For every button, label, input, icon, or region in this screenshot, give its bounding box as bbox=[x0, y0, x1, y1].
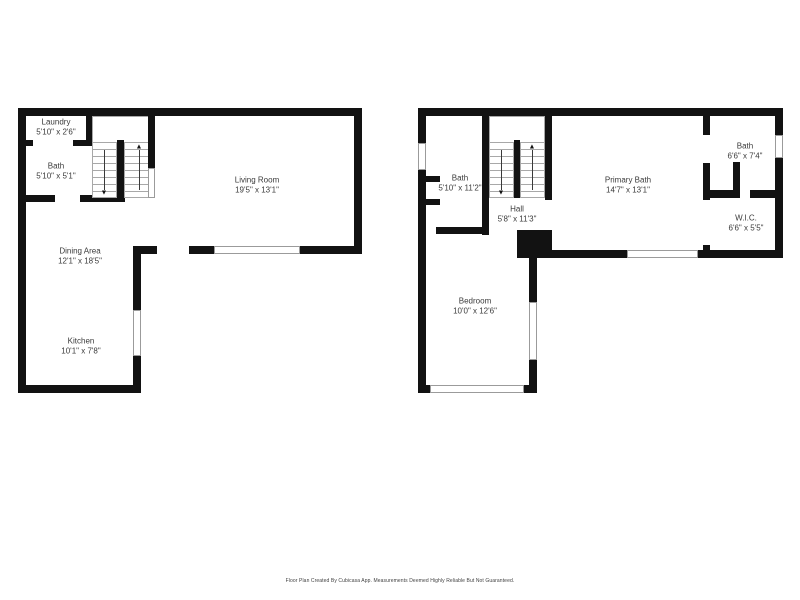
window bbox=[418, 143, 426, 170]
wall bbox=[529, 258, 537, 302]
room-dims: 10'0" x 12'6" bbox=[453, 307, 497, 317]
wall bbox=[482, 116, 489, 235]
stairs-down-arrow-icon: ▼ bbox=[498, 190, 505, 197]
wall bbox=[750, 190, 783, 198]
wall bbox=[517, 230, 552, 258]
floorplan-canvas: ▲ ▼ Laundry 5'10" x 2'6" Bath 5'10" x 5'… bbox=[0, 0, 800, 600]
wall bbox=[703, 116, 710, 135]
wall bbox=[418, 385, 430, 393]
wall bbox=[418, 170, 426, 393]
wall bbox=[418, 108, 783, 116]
room-label-wic: W.I.C. 6'6" x 5'5" bbox=[729, 214, 764, 235]
room-dims: 14'7" x 13'1" bbox=[605, 186, 651, 196]
room-name: Bath bbox=[438, 174, 481, 184]
room-label-hall: Hall 5'8" x 11'3" bbox=[498, 205, 537, 226]
wall bbox=[426, 199, 440, 205]
room-label-primary-bath: Primary Bath 14'7" x 13'1" bbox=[605, 176, 651, 197]
room-label-bath-upper: Bath 5'10" x 11'2" bbox=[438, 174, 481, 195]
stair-direction-line bbox=[501, 150, 502, 190]
stair-direction-line bbox=[532, 150, 533, 190]
room-name: Primary Bath bbox=[605, 176, 651, 186]
disclaimer-text: Floor Plan Created By Cubicasa App. Meas… bbox=[0, 578, 800, 584]
wall bbox=[775, 108, 783, 135]
wall bbox=[524, 385, 537, 393]
wall bbox=[514, 140, 520, 198]
wall bbox=[418, 108, 426, 143]
room-label-bedroom: Bedroom 10'0" x 12'6" bbox=[453, 297, 497, 318]
wall bbox=[775, 158, 783, 258]
room-name: Bedroom bbox=[453, 297, 497, 307]
room-dims: 6'6" x 7'4" bbox=[728, 152, 763, 162]
room-name: Hall bbox=[498, 205, 537, 215]
room-dims: 6'6" x 5'5" bbox=[729, 224, 764, 234]
room-name: W.I.C. bbox=[729, 214, 764, 224]
room-label-bath-corner: Bath 6'6" x 7'4" bbox=[728, 142, 763, 163]
window bbox=[529, 302, 537, 360]
window bbox=[627, 250, 698, 258]
wall bbox=[436, 227, 488, 234]
room-name: Bath bbox=[728, 142, 763, 152]
room-dims: 5'10" x 11'2" bbox=[438, 184, 481, 194]
wall bbox=[552, 250, 627, 258]
stairs-up-arrow-icon: ▲ bbox=[529, 144, 536, 151]
window bbox=[775, 135, 783, 158]
wall bbox=[698, 250, 783, 258]
wall bbox=[703, 245, 710, 258]
wall bbox=[545, 116, 552, 200]
wall bbox=[733, 162, 740, 198]
window bbox=[430, 385, 524, 393]
room-dims: 5'8" x 11'3" bbox=[498, 215, 537, 225]
second-floor-plan: ▲ ▼ Bath 5'10" x 11'2" Hall 5'8" x 11'3" bbox=[0, 0, 800, 600]
